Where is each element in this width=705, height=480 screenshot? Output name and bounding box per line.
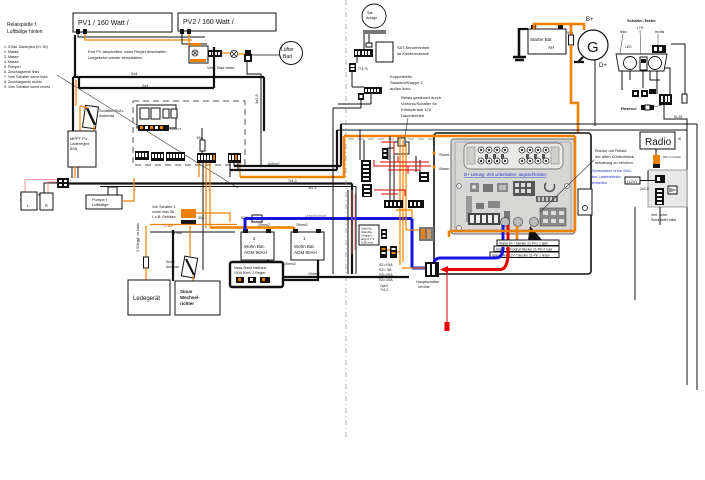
svg-text:Sich-/: Sich-/ bbox=[166, 260, 175, 264]
svg-text:Hauptschalter: Hauptschalter bbox=[416, 280, 440, 284]
svg-text:3x2,5: 3x2,5 bbox=[254, 93, 259, 104]
svg-text:Luftbälge: Luftbälge bbox=[92, 202, 109, 207]
svg-text:25mm2: 25mm2 bbox=[258, 223, 270, 227]
svg-text:+: + bbox=[536, 25, 538, 29]
svg-text:Radio: Radio bbox=[645, 137, 672, 148]
svg-text:Anhlm?: Anhlm? bbox=[268, 162, 280, 166]
svg-text:Staufach/Klappe 2: Staufach/Klappe 2 bbox=[390, 80, 423, 85]
svg-text:2x0,5: 2x0,5 bbox=[640, 187, 649, 191]
svg-text:AGM 90AH: AGM 90AH bbox=[294, 250, 317, 255]
svg-text:25mm2: 25mm2 bbox=[284, 262, 296, 266]
svg-text:Relaisplatte f.: Relaisplatte f. bbox=[7, 22, 37, 28]
svg-text:PV2 / 160 Watt /: PV2 / 160 Watt / bbox=[183, 19, 234, 26]
svg-text:100A 50mV 2 Regler: 100A 50mV 2 Regler bbox=[234, 271, 266, 275]
svg-text:2x4: 2x4 bbox=[131, 71, 138, 76]
svg-text:S2= 3A: S2= 3A bbox=[379, 268, 392, 272]
svg-text:50A: 50A bbox=[70, 146, 77, 151]
svg-text:Alarm: Alarm bbox=[439, 166, 450, 171]
svg-text:LED: LED bbox=[625, 45, 632, 49]
svg-text:Signal D+ / Stecker 21-Pin / 1: Signal D+ / Stecker 21-Pin / 1 gelb bbox=[499, 242, 548, 246]
svg-text:AGM 90AH: AGM 90AH bbox=[244, 250, 267, 255]
svg-text:Lüfter: Lüfter bbox=[281, 47, 294, 53]
svg-text:D+ Leitung- Zeit unterlaufen-: D+ Leitung- Zeit unterlaufen- angeschlos… bbox=[464, 172, 547, 177]
svg-text:f. z.B. Gebläse: f. z.B. Gebläse bbox=[152, 215, 176, 219]
svg-text:KL15: KL15 bbox=[674, 115, 682, 119]
svg-text:Um-Bat: Um-Bat bbox=[418, 285, 430, 289]
svg-text:schaltung zu brücken.: schaltung zu brücken. bbox=[595, 160, 634, 165]
svg-text:Umgekehrt wieder einschalten.: Umgekehrt wieder einschalten. bbox=[88, 55, 143, 60]
svg-text:links: links bbox=[620, 30, 627, 34]
svg-text:Brücke um Relais: Brücke um Relais bbox=[595, 148, 626, 153]
svg-text:3x1,5: 3x1,5 bbox=[308, 186, 317, 190]
svg-text:erstellen: erstellen bbox=[592, 180, 607, 185]
svg-text:Anlage: Anlage bbox=[366, 16, 377, 20]
svg-text:D+: D+ bbox=[599, 63, 607, 69]
svg-text:bei Ladetrennler: bei Ladetrennler bbox=[592, 174, 622, 179]
svg-text:B+: B+ bbox=[586, 17, 594, 23]
svg-text:Bad: Bad bbox=[283, 54, 292, 60]
svg-text:0,38 max.: 0,38 max. bbox=[361, 241, 374, 245]
svg-text:3 30A ggf. im Leder: 3 30A ggf. im Leder bbox=[136, 222, 140, 252]
svg-text:im Kleiderschrank: im Kleiderschrank bbox=[397, 51, 429, 56]
svg-text:Erst PV abschalten, dann Regle: Erst PV abschalten, dann Regler abschalt… bbox=[88, 49, 168, 54]
svg-text:rechts: rechts bbox=[655, 30, 665, 34]
svg-text:8. Zuschlagventil rechts: 8. Zuschlagventil rechts bbox=[4, 80, 42, 84]
svg-text:UR 1 Umcehr: UR 1 Umcehr bbox=[663, 155, 681, 159]
svg-text:PV1 / 160 Watt /: PV1 / 160 Watt / bbox=[78, 20, 129, 27]
svg-text:Vent. Bad oben: Vent. Bad oben bbox=[207, 65, 234, 70]
svg-text:Votronic/Schalter für: Votronic/Schalter für bbox=[401, 101, 438, 106]
svg-text:Wohn Bat.: Wohn Bat. bbox=[294, 244, 315, 249]
svg-text:außen links: außen links bbox=[390, 86, 410, 91]
svg-text:10A/6x?: 10A/6x? bbox=[170, 127, 181, 131]
svg-text:Hi: Hi bbox=[678, 137, 681, 141]
svg-text:R: R bbox=[45, 203, 48, 208]
svg-text:25mm2: 25mm2 bbox=[296, 223, 308, 227]
svg-text:2. Masse: 2. Masse bbox=[4, 50, 19, 54]
svg-text:richter: richter bbox=[180, 301, 194, 306]
svg-text:Dauerbetrieb: Dauerbetrieb bbox=[401, 113, 425, 118]
svg-text:Schmalster ohne Sich.: Schmalster ohne Sich. bbox=[592, 168, 632, 173]
svg-text:SAT-Steuereinheit: SAT-Steuereinheit bbox=[397, 45, 430, 50]
svg-text:6. Zuschlagventil links: 6. Zuschlagventil links bbox=[4, 70, 39, 74]
svg-text:Kühlschrank 12V: Kühlschrank 12V bbox=[401, 107, 432, 112]
svg-text:S3=20A: S3=20A bbox=[379, 273, 393, 277]
svg-text:3. Masse: 3. Masse bbox=[4, 55, 19, 59]
svg-text:Sat-: Sat- bbox=[367, 11, 374, 15]
svg-text:Schaltlafel mitte: Schaltlafel mitte bbox=[651, 218, 676, 222]
svg-text:Wechsel-: Wechsel- bbox=[180, 295, 200, 300]
svg-text:der alten Kühlschrank-: der alten Kühlschrank- bbox=[595, 154, 636, 159]
svg-text:Koppelstelle: Koppelstelle bbox=[390, 74, 413, 79]
svg-text:Automat: Automat bbox=[99, 113, 115, 118]
svg-text:S1=10A: S1=10A bbox=[379, 263, 393, 267]
svg-text:Mess-Shunt Haltkreis: Mess-Shunt Haltkreis bbox=[234, 266, 267, 270]
svg-text:Relais gesteuert durch: Relais gesteuert durch bbox=[401, 95, 441, 100]
svg-text:7+4,7k: 7+4,7k bbox=[358, 67, 368, 71]
svg-text:vorne max 3A: vorne max 3A bbox=[152, 210, 175, 214]
svg-text:S4=10A: S4=10A bbox=[379, 278, 393, 282]
svg-text:Automat: Automat bbox=[166, 265, 179, 269]
svg-text:AH: AH bbox=[548, 45, 554, 50]
svg-text:Von Schalter 3: Von Schalter 3 bbox=[152, 205, 175, 209]
svg-text:Luftbälge hinten: Luftbälge hinten bbox=[7, 29, 43, 35]
svg-text:L+R: L+R bbox=[637, 26, 644, 30]
svg-text:Starter Bat: Starter Bat bbox=[530, 37, 552, 42]
svg-text:7x1,0: 7x1,0 bbox=[288, 179, 297, 183]
svg-text:2x4: 2x4 bbox=[142, 83, 149, 88]
svg-text:7. Vom Schalter vorne links: 7. Vom Schalter vorne links bbox=[4, 75, 48, 79]
svg-text:Leseztshlecht: Leseztshlecht bbox=[305, 214, 326, 218]
svg-text:Wohn Bat.: Wohn Bat. bbox=[244, 244, 265, 249]
svg-text:5. Pumpe+: 5. Pumpe+ bbox=[4, 65, 21, 69]
svg-text:Reserve: Reserve bbox=[621, 106, 637, 111]
svg-text:Ledegerät: Ledegerät bbox=[133, 296, 160, 302]
svg-text:Schalter-Taster: Schalter-Taster bbox=[627, 18, 656, 23]
svg-text:(12V): (12V) bbox=[627, 179, 637, 184]
svg-text:30A: 30A bbox=[198, 216, 205, 220]
svg-text:Sinus: Sinus bbox=[180, 289, 193, 294]
svg-text:Shunt: Shunt bbox=[439, 152, 450, 157]
svg-text:1. S.Bat. Dauerplus (Kl. 30): 1. S.Bat. Dauerplus (Kl. 30) bbox=[4, 45, 48, 49]
svg-text:+: + bbox=[70, 178, 72, 182]
svg-text:10mm2: 10mm2 bbox=[308, 272, 320, 276]
svg-text:7x1,0: 7x1,0 bbox=[380, 288, 388, 292]
svg-text:4. Masse: 4. Masse bbox=[4, 60, 19, 64]
svg-text:G: G bbox=[587, 39, 599, 56]
svg-text:9. Vom Schalter vorne rechts: 9. Vom Schalter vorne rechts bbox=[4, 85, 50, 89]
